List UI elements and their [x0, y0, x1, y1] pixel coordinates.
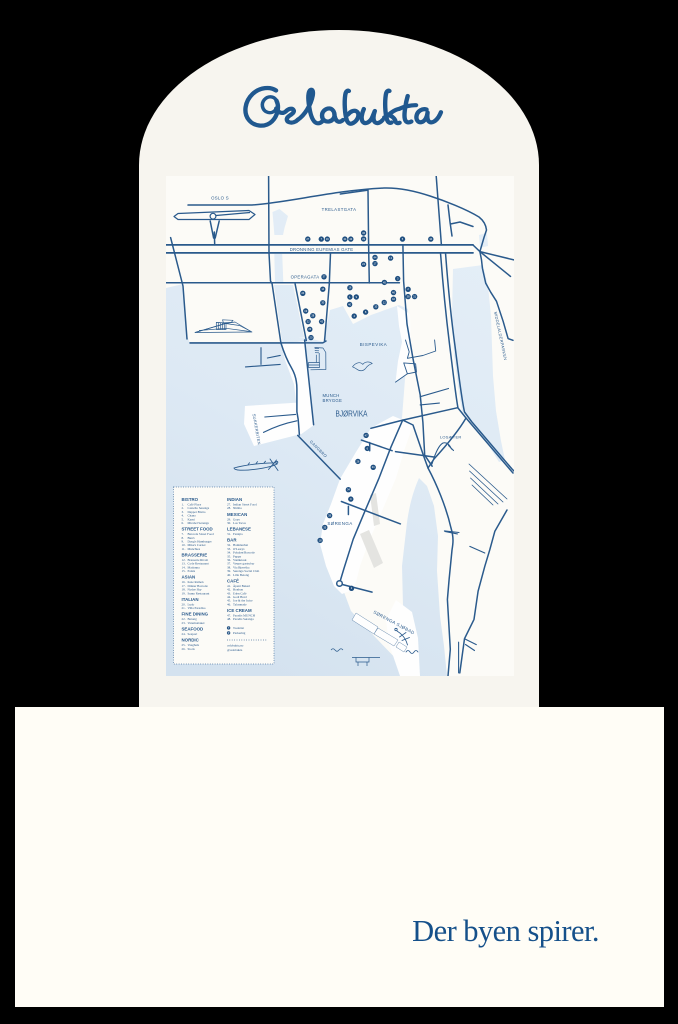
svg-text:BAR: BAR: [227, 538, 237, 543]
svg-text:CAFÉ: CAFÉ: [227, 578, 239, 583]
svg-text:Seaport: Seaport: [188, 632, 198, 636]
svg-text:28.: 28.: [227, 506, 231, 510]
svg-text:Los Tacos: Los Tacos: [233, 521, 247, 525]
svg-text:40.: 40.: [227, 573, 231, 577]
svg-text:Palais: Palais: [188, 569, 196, 573]
svg-text:6.: 6.: [182, 521, 185, 525]
svg-text:Nimba: Nimba: [233, 506, 242, 510]
svg-text:Talormade: Talormade: [233, 602, 247, 606]
svg-text:Lille Betong: Lille Betong: [233, 573, 249, 577]
svg-text:23.: 23.: [182, 621, 186, 625]
svg-text:DRONNING EUFEMIAS GATE: DRONNING EUFEMIAS GATE: [290, 247, 354, 252]
svg-text:BISPEVIKA: BISPEVIKA: [360, 342, 387, 347]
svg-text:Villa Paradiso: Villa Paradiso: [188, 606, 206, 610]
svg-text:NORDIC: NORDIC: [182, 638, 200, 643]
svg-text:BRYGGE: BRYGGE: [323, 398, 343, 403]
svg-text:Stock: Stock: [188, 647, 196, 651]
svg-text:Toalettet: Toalettet: [233, 626, 244, 630]
svg-text:26.: 26.: [182, 647, 186, 651]
svg-text:Varemottaket: Varemottaket: [188, 621, 205, 625]
svg-text:Sumo Restaurant: Sumo Restaurant: [188, 591, 210, 595]
svg-text:ASIAN: ASIAN: [182, 575, 196, 580]
svg-text:Munchies: Munchies: [188, 547, 201, 551]
svg-text:48.: 48.: [227, 617, 231, 621]
svg-text:OPERAGATA: OPERAGATA: [291, 274, 320, 279]
svg-text:15.: 15.: [182, 569, 186, 573]
svg-text:MEXICAN: MEXICAN: [227, 512, 247, 517]
svg-text:FINE DINING: FINE DINING: [182, 612, 209, 617]
svg-text:BISTRO: BISTRO: [182, 497, 199, 502]
svg-text:24.: 24.: [182, 632, 186, 636]
svg-text:STREET FOOD: STREET FOOD: [182, 527, 213, 532]
svg-text:ITALIAN: ITALIAN: [182, 597, 199, 602]
svg-text:ICE CREAM: ICE CREAM: [227, 608, 252, 613]
svg-text:oslobukta.no: oslobukta.no: [227, 644, 244, 648]
svg-text:19.: 19.: [182, 591, 186, 595]
svg-text:INDIAN: INDIAN: [227, 497, 242, 502]
svg-text:Paradis Sørenga: Paradis Sørenga: [233, 617, 254, 621]
svg-text:LEBANESE: LEBANESE: [227, 527, 251, 532]
svg-text:46.: 46.: [227, 602, 231, 606]
svg-text:SEAFOOD: SEAFOOD: [182, 627, 204, 632]
svg-text:LOSÆTER: LOSÆTER: [440, 435, 461, 440]
svg-text:BJØRVIKA: BJØRVIKA: [336, 410, 369, 419]
svg-text:SØRENGA: SØRENGA: [327, 521, 352, 526]
svg-text:21.: 21.: [182, 606, 186, 610]
svg-text:BRASSERIE: BRASSERIE: [182, 553, 208, 558]
svg-text:@oslobukta: @oslobukta: [227, 648, 243, 652]
svg-text:TRELASTGATA: TRELASTGATA: [322, 207, 357, 212]
svg-text:Parkering: Parkering: [233, 631, 246, 635]
svg-text:31.: 31.: [227, 532, 231, 536]
svg-text:Feniqia: Feniqia: [233, 532, 243, 536]
svg-text:30.: 30.: [227, 521, 231, 525]
svg-text:Mirabel Sørenga: Mirabel Sørenga: [188, 521, 210, 525]
svg-text:OSLO S: OSLO S: [211, 196, 229, 201]
svg-text:11.: 11.: [182, 547, 186, 551]
